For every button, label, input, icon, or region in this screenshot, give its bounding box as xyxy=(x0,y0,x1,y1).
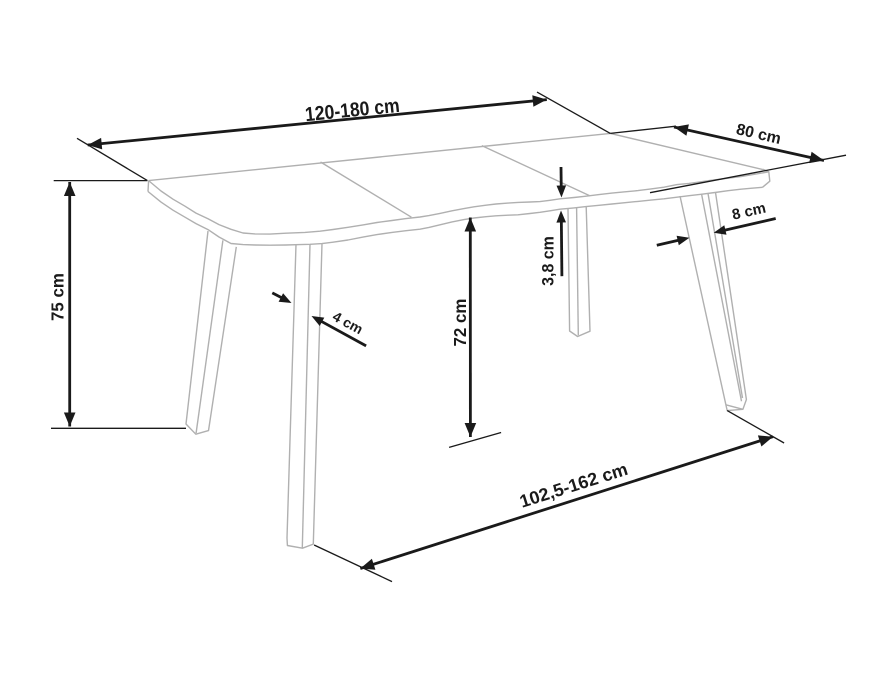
svg-text:75 cm: 75 cm xyxy=(47,273,68,321)
svg-text:3,8 cm: 3,8 cm xyxy=(539,236,558,286)
svg-text:72 cm: 72 cm xyxy=(449,299,470,347)
